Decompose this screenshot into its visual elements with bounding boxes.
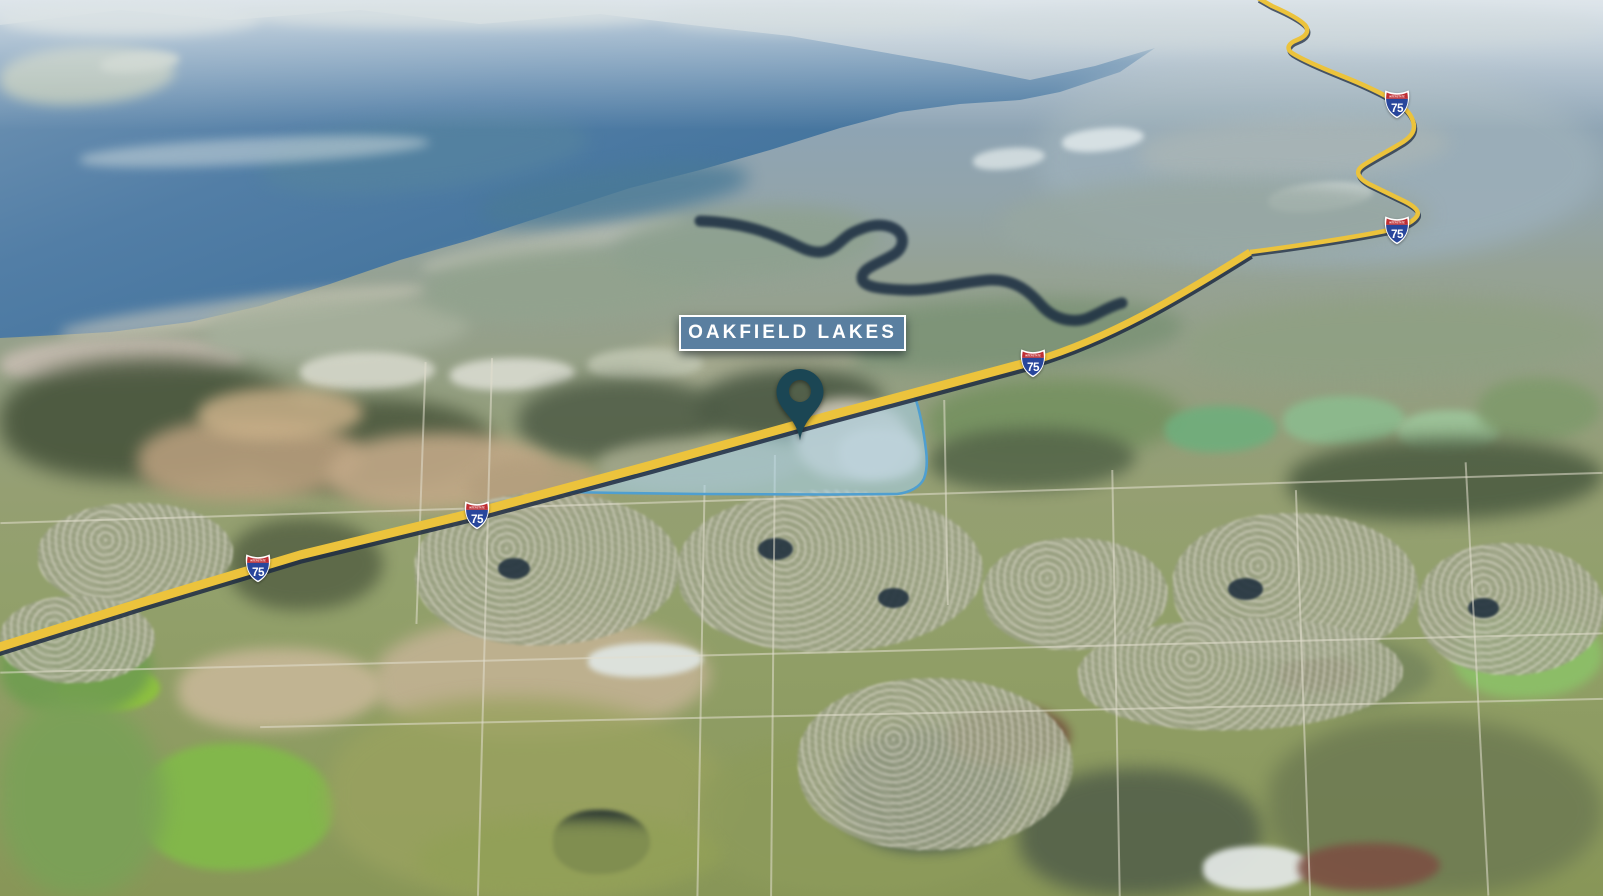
shield-number: 75 (1391, 228, 1404, 241)
shield-number: 75 (252, 566, 265, 579)
route-upper (1250, 0, 1418, 252)
shield-band-label: INTERSTATE (250, 560, 266, 563)
interstate-shield: INTERSTATE 75 (1021, 349, 1046, 377)
map-canvas[interactable]: INTERSTATE 75 INTERSTATE 75 INTERSTATE 7… (0, 0, 1603, 896)
shield-band-label: INTERSTATE (1389, 96, 1405, 99)
river (700, 221, 1122, 321)
project-label-text: OAKFIELD LAKES (688, 322, 897, 344)
shield-number: 75 (1391, 102, 1404, 115)
route-mid (1035, 252, 1250, 361)
map-annotation-layer: INTERSTATE 75 INTERSTATE 75 INTERSTATE 7… (0, 0, 1603, 896)
route-shadow-lower (0, 365, 1037, 655)
route-shadow-upper (1251, 1, 1419, 255)
interstate-shield: INTERSTATE 75 (465, 501, 490, 529)
shield-band-label: INTERSTATE (469, 507, 485, 510)
shield-number: 75 (471, 513, 484, 526)
shield-band-label: INTERSTATE (1025, 355, 1041, 358)
interstate-shield: INTERSTATE 75 (1385, 216, 1410, 244)
project-label-box: OAKFIELD LAKES (679, 315, 906, 351)
shield-number: 75 (1027, 361, 1040, 374)
shield-band-label: INTERSTATE (1389, 222, 1405, 225)
